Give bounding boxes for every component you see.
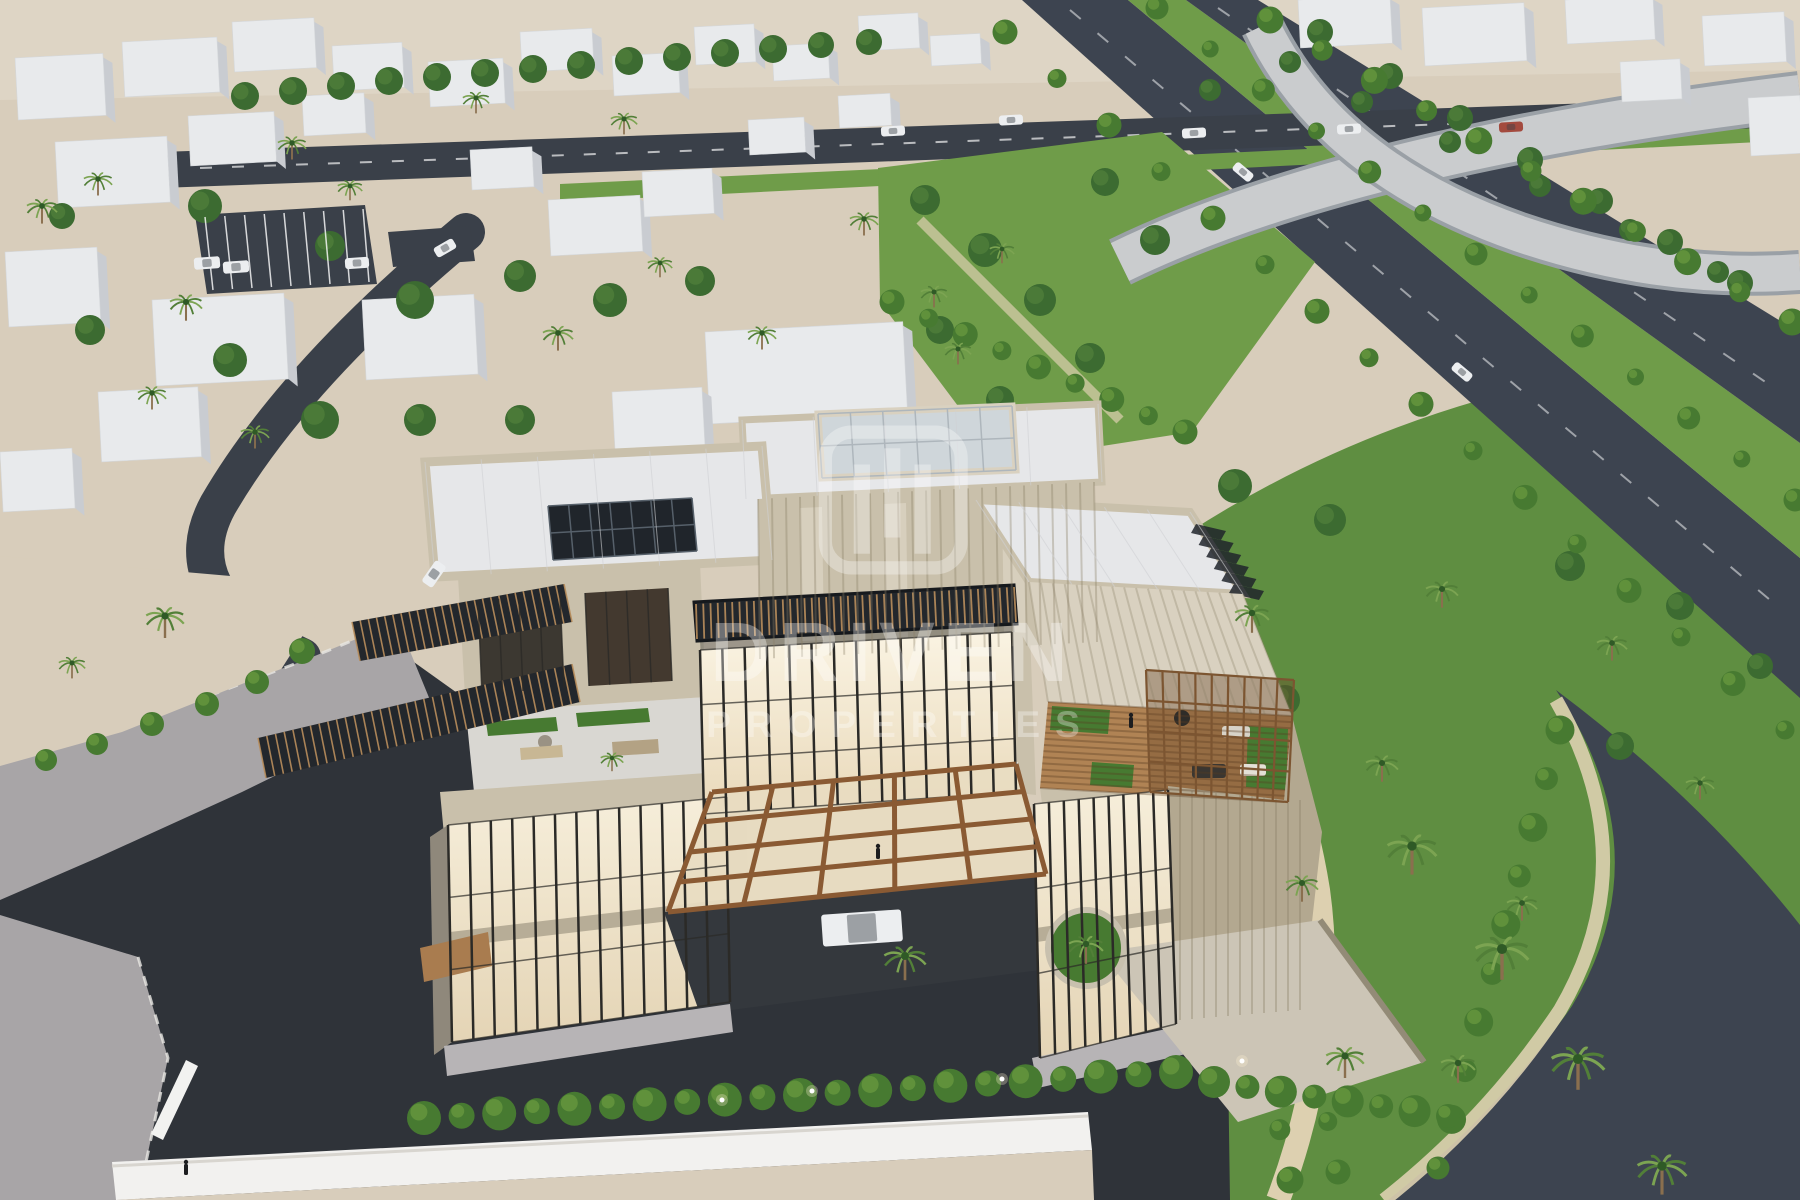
- tree: [1555, 551, 1585, 581]
- car-windshield: [202, 259, 212, 268]
- bush: [975, 1071, 1001, 1097]
- tree: [504, 260, 536, 292]
- tree: [685, 266, 715, 296]
- building-top: [470, 147, 534, 190]
- building-top: [98, 387, 202, 462]
- bush: [1416, 100, 1437, 121]
- building-top: [5, 247, 101, 327]
- context-building: [1748, 95, 1800, 164]
- tree: [231, 82, 259, 110]
- tree: [1657, 229, 1683, 255]
- car-windshield: [231, 263, 241, 272]
- aerial-render-image: DRIVEN PROPERTIES: [0, 0, 1800, 1200]
- bush: [1729, 281, 1750, 302]
- bush: [1361, 67, 1388, 94]
- bush: [1235, 1075, 1259, 1099]
- detail-line: [739, 602, 740, 637]
- car-windshield: [1007, 117, 1016, 123]
- bush: [289, 638, 315, 664]
- tree: [1314, 504, 1346, 536]
- detail-line: [783, 599, 784, 634]
- bush: [86, 733, 108, 755]
- bush: [1436, 1104, 1460, 1128]
- bush: [1358, 161, 1381, 184]
- car: [999, 114, 1023, 125]
- bush: [1409, 392, 1434, 417]
- bush: [1535, 767, 1558, 790]
- tree: [75, 315, 105, 345]
- bush: [1305, 299, 1330, 324]
- bush: [1399, 1095, 1431, 1127]
- bush: [1677, 407, 1700, 430]
- bush: [1125, 1061, 1151, 1087]
- car: [881, 125, 905, 136]
- bush: [1721, 671, 1746, 696]
- building-top: [748, 117, 806, 155]
- bush: [1026, 355, 1051, 380]
- bush: [993, 20, 1018, 45]
- tree: [396, 281, 434, 319]
- tree: [505, 405, 535, 435]
- tree: [213, 343, 247, 377]
- terrace-seating: [612, 739, 659, 756]
- tree: [1024, 284, 1056, 316]
- bush: [1513, 485, 1538, 510]
- bush: [1198, 1066, 1230, 1098]
- building-top: [1748, 95, 1800, 156]
- bush: [1173, 420, 1198, 445]
- bush: [1414, 205, 1431, 222]
- bush: [1084, 1060, 1118, 1094]
- car-windshield: [1345, 126, 1354, 132]
- tree: [1279, 51, 1301, 73]
- bush: [1546, 716, 1575, 745]
- bush: [1360, 348, 1379, 367]
- tree: [1218, 469, 1252, 503]
- tree: [567, 51, 595, 79]
- car-windshield: [352, 259, 361, 267]
- render-scene: [0, 0, 1800, 1200]
- bush: [1269, 1119, 1290, 1140]
- deck-table: [1174, 710, 1190, 726]
- tree: [1707, 261, 1729, 283]
- bush: [1465, 243, 1488, 266]
- tree: [663, 43, 691, 71]
- car-windshield: [889, 128, 898, 134]
- bush: [1521, 287, 1538, 304]
- tree: [49, 203, 75, 229]
- building-top: [612, 387, 705, 454]
- tree: [856, 29, 882, 55]
- bush: [1048, 69, 1067, 88]
- building-top: [302, 93, 366, 136]
- tree: [519, 55, 547, 83]
- bush: [1265, 1076, 1297, 1108]
- detail-line: [725, 602, 726, 637]
- bush: [1308, 123, 1325, 140]
- bush: [1332, 1085, 1364, 1117]
- bush: [1009, 1064, 1043, 1098]
- tree: [1439, 131, 1461, 153]
- bush: [1252, 79, 1275, 102]
- tree: [759, 35, 787, 63]
- bush: [1139, 406, 1158, 425]
- detail-line: [710, 603, 711, 638]
- detail-line: [747, 601, 748, 636]
- tree: [1091, 168, 1119, 196]
- bush: [992, 341, 1011, 360]
- bush: [1776, 721, 1795, 740]
- detail-line: [703, 604, 704, 639]
- bush: [1570, 188, 1597, 215]
- bush: [1518, 813, 1547, 842]
- detail-line: [761, 601, 762, 636]
- car-windshield: [847, 913, 878, 943]
- detail-line: [754, 601, 755, 636]
- bush: [1625, 221, 1646, 242]
- car-windshield: [1190, 130, 1199, 136]
- tree: [423, 63, 451, 91]
- tree: [315, 231, 345, 261]
- bush: [1318, 1112, 1337, 1131]
- bush: [1099, 387, 1124, 412]
- tree: [471, 59, 499, 87]
- car: [223, 260, 250, 274]
- bush: [880, 290, 905, 315]
- detail-line: [696, 604, 697, 639]
- person-figure: [876, 844, 880, 859]
- bush: [1302, 1085, 1326, 1109]
- bush: [407, 1101, 441, 1135]
- bush: [933, 1069, 967, 1103]
- tree: [615, 47, 643, 75]
- bush: [1617, 578, 1642, 603]
- bush: [195, 692, 219, 716]
- bollard-light: [996, 1073, 1008, 1085]
- tree: [1747, 653, 1773, 679]
- building-top: [0, 448, 75, 512]
- bush: [449, 1103, 475, 1129]
- context-building: [98, 386, 211, 470]
- building-top: [642, 168, 714, 217]
- bush: [1521, 161, 1542, 182]
- car: [1337, 123, 1361, 134]
- parking-lot-small: [388, 226, 475, 267]
- tree: [404, 404, 436, 436]
- building-top: [15, 53, 106, 120]
- detail-line: [768, 600, 769, 635]
- bush: [900, 1075, 926, 1101]
- tree: [327, 72, 355, 100]
- bush: [1256, 255, 1275, 274]
- bush: [245, 670, 269, 694]
- bush: [1464, 441, 1483, 460]
- tree: [910, 185, 940, 215]
- tree: [375, 67, 403, 95]
- car: [194, 256, 221, 270]
- bush: [1672, 627, 1691, 646]
- bush: [1202, 41, 1219, 58]
- tree: [808, 32, 834, 58]
- bush: [1674, 248, 1701, 275]
- bush: [1257, 7, 1284, 34]
- building-top: [1422, 3, 1527, 66]
- bush: [1568, 534, 1587, 553]
- bush: [919, 309, 938, 328]
- building-top: [548, 195, 643, 256]
- bush: [1571, 325, 1594, 348]
- bush: [1201, 206, 1226, 231]
- tree: [1075, 343, 1105, 373]
- bush: [1369, 1094, 1393, 1118]
- bush: [35, 749, 57, 771]
- tree: [711, 39, 739, 67]
- building-top: [55, 136, 170, 208]
- bush: [557, 1092, 591, 1126]
- person-figure: [1129, 713, 1133, 728]
- tree: [1666, 592, 1694, 620]
- bush: [1733, 451, 1750, 468]
- bollard-light: [806, 1085, 818, 1097]
- context-building: [152, 293, 298, 394]
- bush: [1508, 865, 1531, 888]
- car-windshield: [1507, 124, 1516, 130]
- building-top: [1565, 0, 1655, 44]
- bush: [1097, 113, 1122, 138]
- bush: [140, 712, 164, 736]
- building-top: [232, 18, 317, 72]
- building-top: [1620, 59, 1682, 102]
- detail-line: [776, 600, 777, 635]
- bush: [1159, 1055, 1193, 1089]
- bush: [633, 1087, 667, 1121]
- car: [1182, 127, 1206, 138]
- tree: [1351, 91, 1373, 113]
- tree: [593, 283, 627, 317]
- bush: [1464, 1008, 1493, 1037]
- bush: [825, 1080, 851, 1106]
- bush: [1326, 1160, 1351, 1185]
- building-top: [838, 93, 892, 128]
- bush: [1627, 369, 1644, 386]
- bush: [524, 1098, 550, 1124]
- building-top: [122, 37, 220, 97]
- bush: [674, 1089, 700, 1115]
- car: [1499, 121, 1523, 132]
- tree: [279, 77, 307, 105]
- bush: [482, 1096, 516, 1130]
- tree: [1447, 105, 1473, 131]
- bush: [1050, 1066, 1076, 1092]
- building-top: [1702, 12, 1787, 66]
- bush: [749, 1084, 775, 1110]
- building-top: [930, 33, 982, 66]
- bush: [953, 322, 978, 347]
- bush: [858, 1073, 892, 1107]
- bush: [1152, 162, 1171, 181]
- person-figure: [184, 1160, 188, 1175]
- building-top: [188, 111, 276, 165]
- car: [821, 909, 903, 947]
- bush: [1066, 374, 1085, 393]
- bollard-light: [1236, 1055, 1248, 1067]
- car: [345, 257, 370, 270]
- bush: [1312, 40, 1333, 61]
- tree: [1199, 79, 1221, 101]
- detail-line: [718, 603, 719, 638]
- bush: [1427, 1157, 1450, 1180]
- tree: [301, 401, 339, 439]
- bollard-light: [716, 1094, 728, 1106]
- bush: [599, 1094, 625, 1120]
- bush: [1465, 127, 1492, 154]
- tree: [1140, 225, 1170, 255]
- tree: [1606, 732, 1634, 760]
- detail-line: [732, 602, 733, 637]
- bush: [1277, 1167, 1304, 1194]
